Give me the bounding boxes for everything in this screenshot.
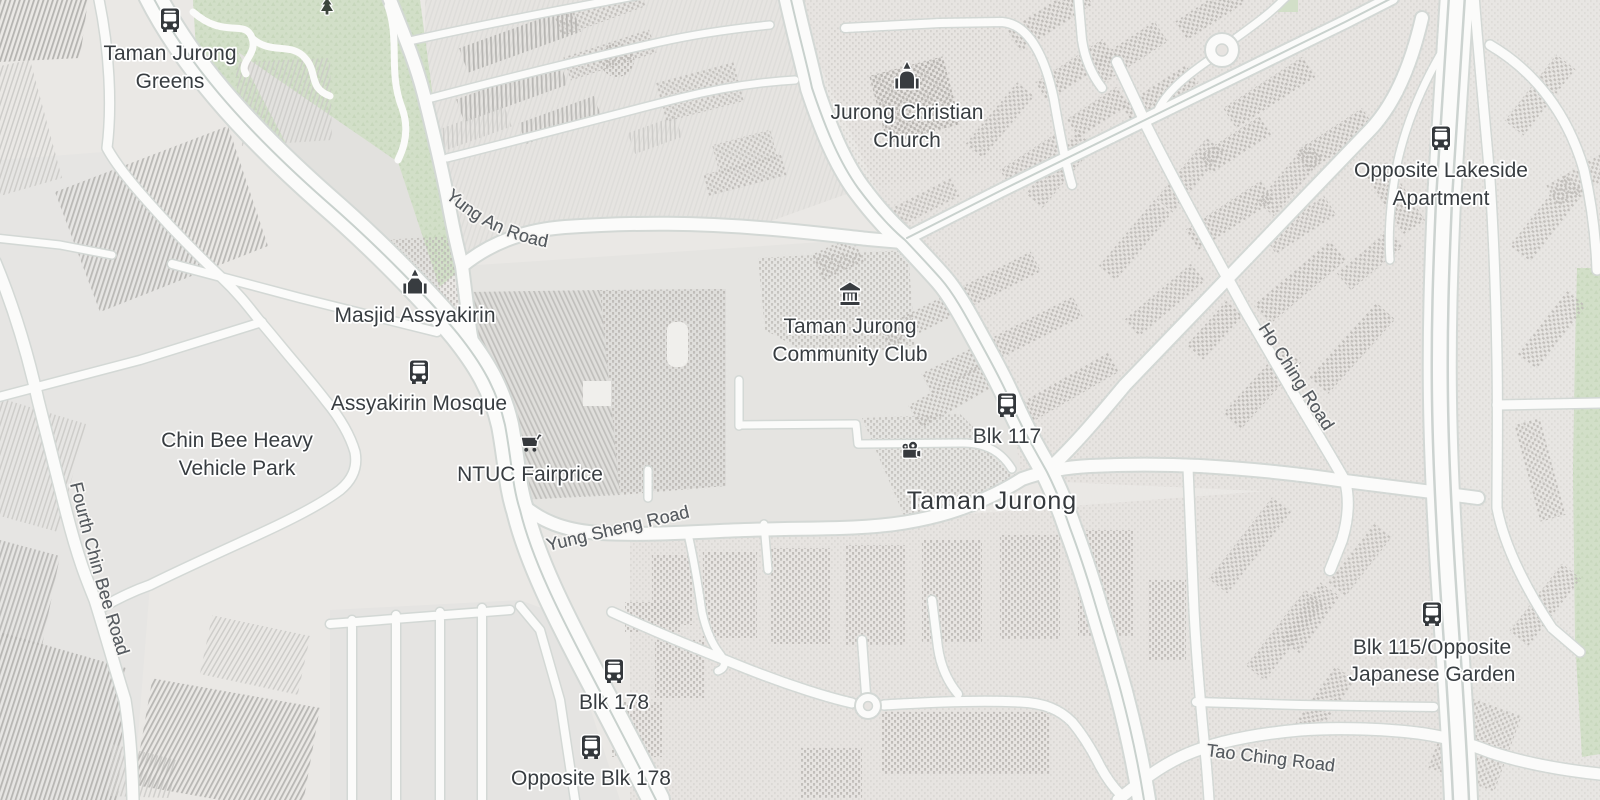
svg-text:Apartment: Apartment	[1393, 187, 1490, 210]
svg-text:Greens: Greens	[136, 70, 205, 93]
svg-text:NTUC Fairprice: NTUC Fairprice	[457, 463, 603, 486]
svg-text:Taman Jurong: Taman Jurong	[907, 487, 1077, 515]
svg-text:Taman Jurong: Taman Jurong	[783, 315, 916, 338]
svg-text:Assyakirin Mosque: Assyakirin Mosque	[331, 392, 507, 415]
svg-text:Opposite Lakeside: Opposite Lakeside	[1354, 159, 1528, 182]
svg-text:Blk 117: Blk 117	[973, 425, 1042, 448]
svg-text:Opposite Blk 178: Opposite Blk 178	[511, 767, 671, 790]
svg-text:Vehicle Park: Vehicle Park	[179, 457, 296, 480]
svg-text:Masjid Assyakirin: Masjid Assyakirin	[334, 304, 495, 327]
svg-text:Japanese Garden: Japanese Garden	[1349, 663, 1516, 686]
svg-text:Jurong Christian: Jurong Christian	[831, 101, 984, 124]
svg-text:Church: Church	[873, 129, 941, 152]
svg-text:Community Club: Community Club	[772, 343, 927, 366]
svg-text:Taman Jurong: Taman Jurong	[103, 42, 236, 65]
svg-text:Blk 178: Blk 178	[579, 691, 649, 714]
svg-text:Chin Bee Heavy: Chin Bee Heavy	[161, 429, 313, 452]
svg-text:Blk 115/Opposite: Blk 115/Opposite	[1353, 636, 1511, 659]
